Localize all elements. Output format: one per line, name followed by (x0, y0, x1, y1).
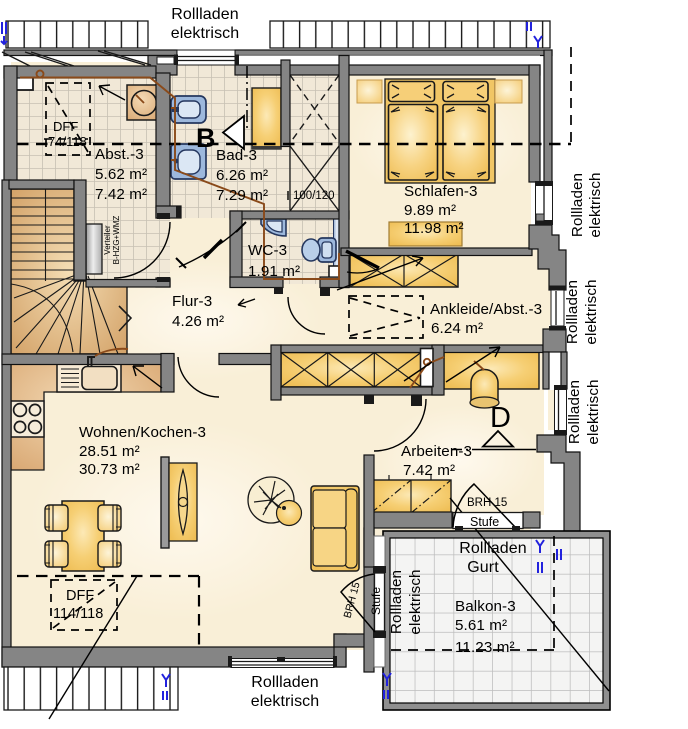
svg-text:7.42 m²: 7.42 m² (403, 462, 455, 479)
svg-text:6.26 m²: 6.26 m² (216, 167, 268, 184)
svg-text:Flur-3: Flur-3 (172, 293, 212, 310)
svg-text:5.62 m²: 5.62 m² (95, 166, 147, 183)
svg-text:Stufe: Stufe (470, 515, 499, 529)
svg-text:elektrisch: elektrisch (407, 569, 424, 634)
svg-text:5.61 m²: 5.61 m² (455, 617, 507, 634)
svg-text:114/118: 114/118 (53, 606, 103, 622)
svg-text:Verteiler: Verteiler (103, 225, 112, 255)
svg-text:elektrisch: elektrisch (585, 379, 602, 444)
svg-text:Balkon-3: Balkon-3 (455, 598, 516, 615)
svg-text:11.98 m²: 11.98 m² (404, 220, 464, 237)
svg-text:WC-3: WC-3 (248, 242, 287, 259)
svg-text:7.42 m²: 7.42 m² (95, 186, 147, 203)
svg-text:4.26 m²: 4.26 m² (172, 313, 224, 330)
svg-text:B-HZG+WMZ: B-HZG+WMZ (112, 216, 121, 265)
svg-text:Wohnen/Kochen-3: Wohnen/Kochen-3 (79, 424, 206, 441)
svg-text:Arbeiten-3: Arbeiten-3 (401, 443, 472, 460)
svg-text:Ankleide/Abst.-3: Ankleide/Abst.-3 (430, 301, 542, 318)
svg-text:Rollladen: Rollladen (569, 173, 586, 237)
svg-text:11.23 m²: 11.23 m² (455, 639, 515, 656)
svg-text:Rollladen: Rollladen (566, 380, 583, 444)
svg-text:100/120: 100/120 (293, 190, 335, 202)
svg-text:Rollladen: Rollladen (388, 570, 405, 634)
svg-text:Rollladen: Rollladen (459, 540, 527, 557)
svg-text:B: B (196, 123, 216, 153)
svg-text:Stufe: Stufe (369, 587, 383, 615)
svg-text:74/118: 74/118 (48, 134, 87, 149)
svg-text:elektrisch: elektrisch (251, 693, 320, 710)
svg-text:Schlafen-3: Schlafen-3 (404, 183, 478, 200)
svg-text:DFF: DFF (53, 119, 78, 134)
svg-text:6.24 m²: 6.24 m² (431, 320, 483, 337)
svg-text:28.51 m²: 28.51 m² (79, 443, 140, 460)
svg-text:7.29 m²: 7.29 m² (216, 187, 268, 204)
svg-text:Rollladen: Rollladen (251, 674, 319, 691)
svg-text:9.89 m²: 9.89 m² (404, 202, 456, 219)
svg-text:Bad-3: Bad-3 (216, 147, 257, 164)
svg-text:BRH 15: BRH 15 (467, 497, 507, 509)
svg-text:elektrisch: elektrisch (587, 172, 604, 237)
svg-text:elektrisch: elektrisch (583, 279, 600, 344)
svg-text:Abst.-3: Abst.-3 (95, 146, 144, 163)
svg-text:Gurt: Gurt (467, 559, 499, 576)
svg-text:Rollladen: Rollladen (171, 6, 239, 23)
svg-text:1.91 m²: 1.91 m² (248, 263, 300, 280)
svg-text:elektrisch: elektrisch (171, 25, 240, 42)
svg-text:DFF: DFF (66, 588, 94, 604)
svg-text:30.73 m²: 30.73 m² (79, 461, 140, 478)
svg-text:D: D (490, 402, 511, 434)
svg-text:Rollladen: Rollladen (564, 280, 581, 344)
